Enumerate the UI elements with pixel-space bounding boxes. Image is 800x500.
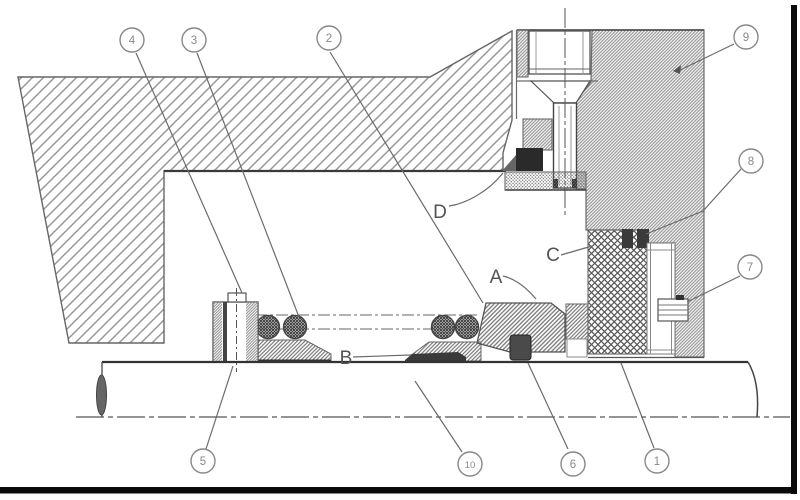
- svg-text:D: D: [433, 202, 447, 223]
- svg-text:5: 5: [200, 456, 206, 468]
- svg-text:7: 7: [747, 262, 753, 274]
- svg-text:9: 9: [743, 32, 749, 44]
- svg-text:C: C: [546, 245, 560, 266]
- svg-text:4: 4: [129, 35, 136, 47]
- svg-text:3: 3: [191, 35, 197, 47]
- svg-text:B: B: [340, 348, 353, 369]
- svg-text:8: 8: [748, 156, 754, 168]
- svg-text:6: 6: [570, 459, 576, 471]
- svg-text:1: 1: [654, 456, 660, 468]
- svg-text:A: A: [490, 267, 503, 288]
- svg-text:2: 2: [326, 33, 332, 45]
- svg-text:10: 10: [465, 460, 476, 471]
